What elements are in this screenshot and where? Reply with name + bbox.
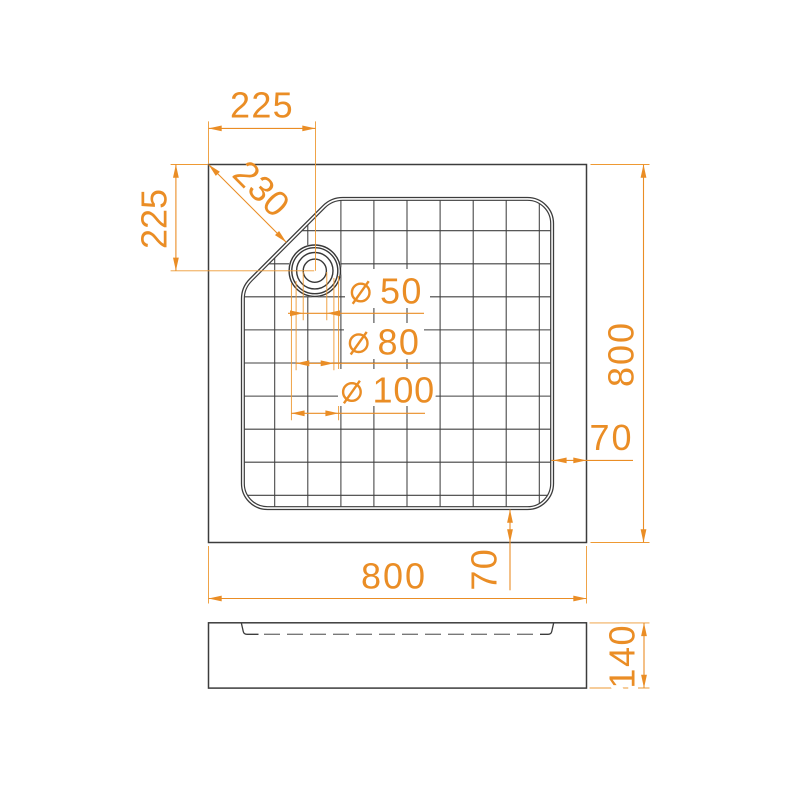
svg-text:70: 70 [590,417,634,458]
svg-text:70: 70 [464,548,505,591]
svg-text:100: 100 [373,370,435,411]
svg-text:800: 800 [361,556,427,597]
svg-text:50: 50 [380,271,423,312]
svg-text:225: 225 [230,85,294,126]
svg-text:80: 80 [378,322,421,363]
svg-text:800: 800 [601,321,642,387]
svg-text:140: 140 [602,624,643,689]
svg-text:225: 225 [134,189,175,249]
